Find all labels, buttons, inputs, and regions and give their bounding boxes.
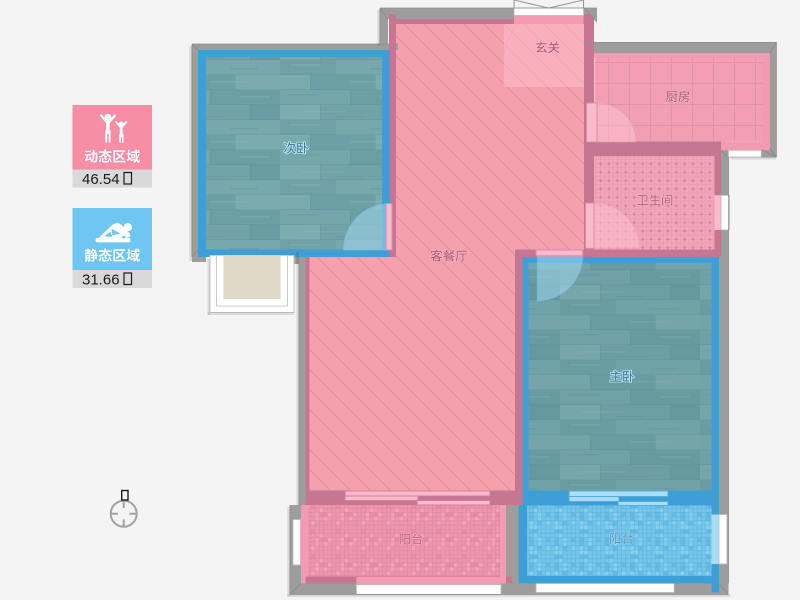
svg-text:31.66: 31.66 bbox=[82, 272, 120, 289]
svg-text:46.54: 46.54 bbox=[82, 171, 120, 188]
